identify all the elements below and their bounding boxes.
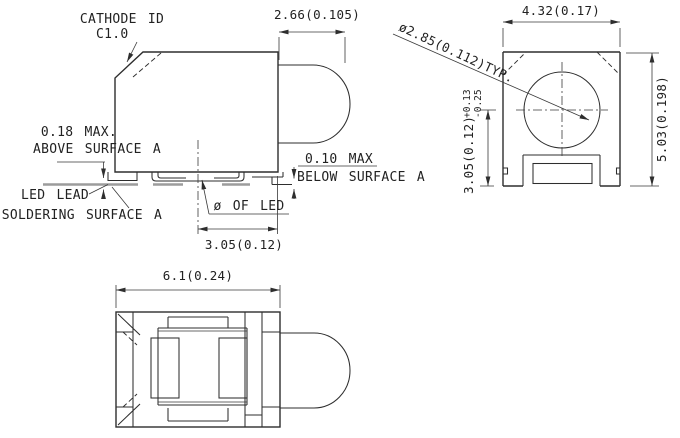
side-lens-crosshair bbox=[516, 62, 608, 158]
led-outline-drawing: CATHODE ID C1.0 2.66(0.105) 0.18 MAX. AB… bbox=[0, 0, 680, 438]
bottom-left-pad bbox=[151, 338, 179, 398]
dim-axis-height: 3.05(0.12) bbox=[461, 116, 476, 194]
side-inner-structure bbox=[503, 155, 620, 186]
dim-axis-height-tol-plus: +0.13 bbox=[462, 89, 473, 118]
bottom-extension-lines bbox=[116, 285, 280, 308]
led-lead-label: LED LEAD bbox=[21, 188, 89, 203]
side-lead-rect bbox=[533, 164, 592, 184]
bottom-inner-thin-lines bbox=[158, 331, 247, 402]
side-view: 4.32(0.17) ø2.85(0.112)TYP. 5.03(0.198) … bbox=[393, 3, 669, 194]
above-surface-label: ABOVE SURFACE A bbox=[33, 142, 161, 157]
cathode-id-label: CATHODE ID bbox=[80, 12, 164, 27]
dim-center-to-face: 3.05(0.12) bbox=[205, 237, 283, 252]
bottom-inner-structure bbox=[116, 312, 280, 427]
led-diameter-ref-label: ø OF LED bbox=[213, 199, 284, 214]
dim-axis-height-group: 3.05(0.12) +0.13 -0.25 bbox=[461, 89, 484, 194]
bottom-lens-dome bbox=[280, 333, 350, 408]
dim-axis-height-tol-minus: -0.25 bbox=[473, 89, 484, 118]
bottom-body-outline bbox=[116, 312, 280, 427]
front-view: CATHODE ID C1.0 2.66(0.105) 0.18 MAX. AB… bbox=[2, 7, 425, 252]
led-lead-leader-line bbox=[89, 185, 108, 195]
dim-bottom-width: 6.1(0.24) bbox=[163, 268, 233, 283]
bottom-view: 6.1(0.24) bbox=[116, 268, 350, 427]
above-max-label: 0.18 MAX. bbox=[41, 125, 117, 140]
bottom-right-pad bbox=[219, 338, 247, 398]
drawing-canvas: CATHODE ID C1.0 2.66(0.105) 0.18 MAX. AB… bbox=[0, 0, 680, 438]
soldering-leader-line bbox=[112, 187, 129, 208]
lens-diameter-leader-line bbox=[393, 34, 589, 120]
below-max-label: 0.10 MAX bbox=[305, 152, 373, 167]
dim-side-width: 4.32(0.17) bbox=[522, 3, 600, 18]
led-diameter-leader-line bbox=[202, 180, 209, 214]
cathode-mark-label: C1.0 bbox=[96, 27, 129, 42]
front-lens-dome bbox=[278, 65, 350, 143]
bottom-corner-dashed-diagonals bbox=[123, 332, 137, 407]
front-leads bbox=[108, 172, 292, 185]
dim-side-height: 5.03(0.198) bbox=[654, 76, 669, 162]
dim-lens-diameter: ø2.85(0.112)TYP. bbox=[397, 19, 517, 86]
below-surface-label: BELOW SURFACE A bbox=[297, 170, 425, 185]
dim-lens-protrusion: 2.66(0.105) bbox=[274, 7, 360, 22]
bottom-corner-diagonals bbox=[118, 314, 140, 425]
soldering-surface-label: SOLDERING SURFACE A bbox=[2, 208, 162, 223]
